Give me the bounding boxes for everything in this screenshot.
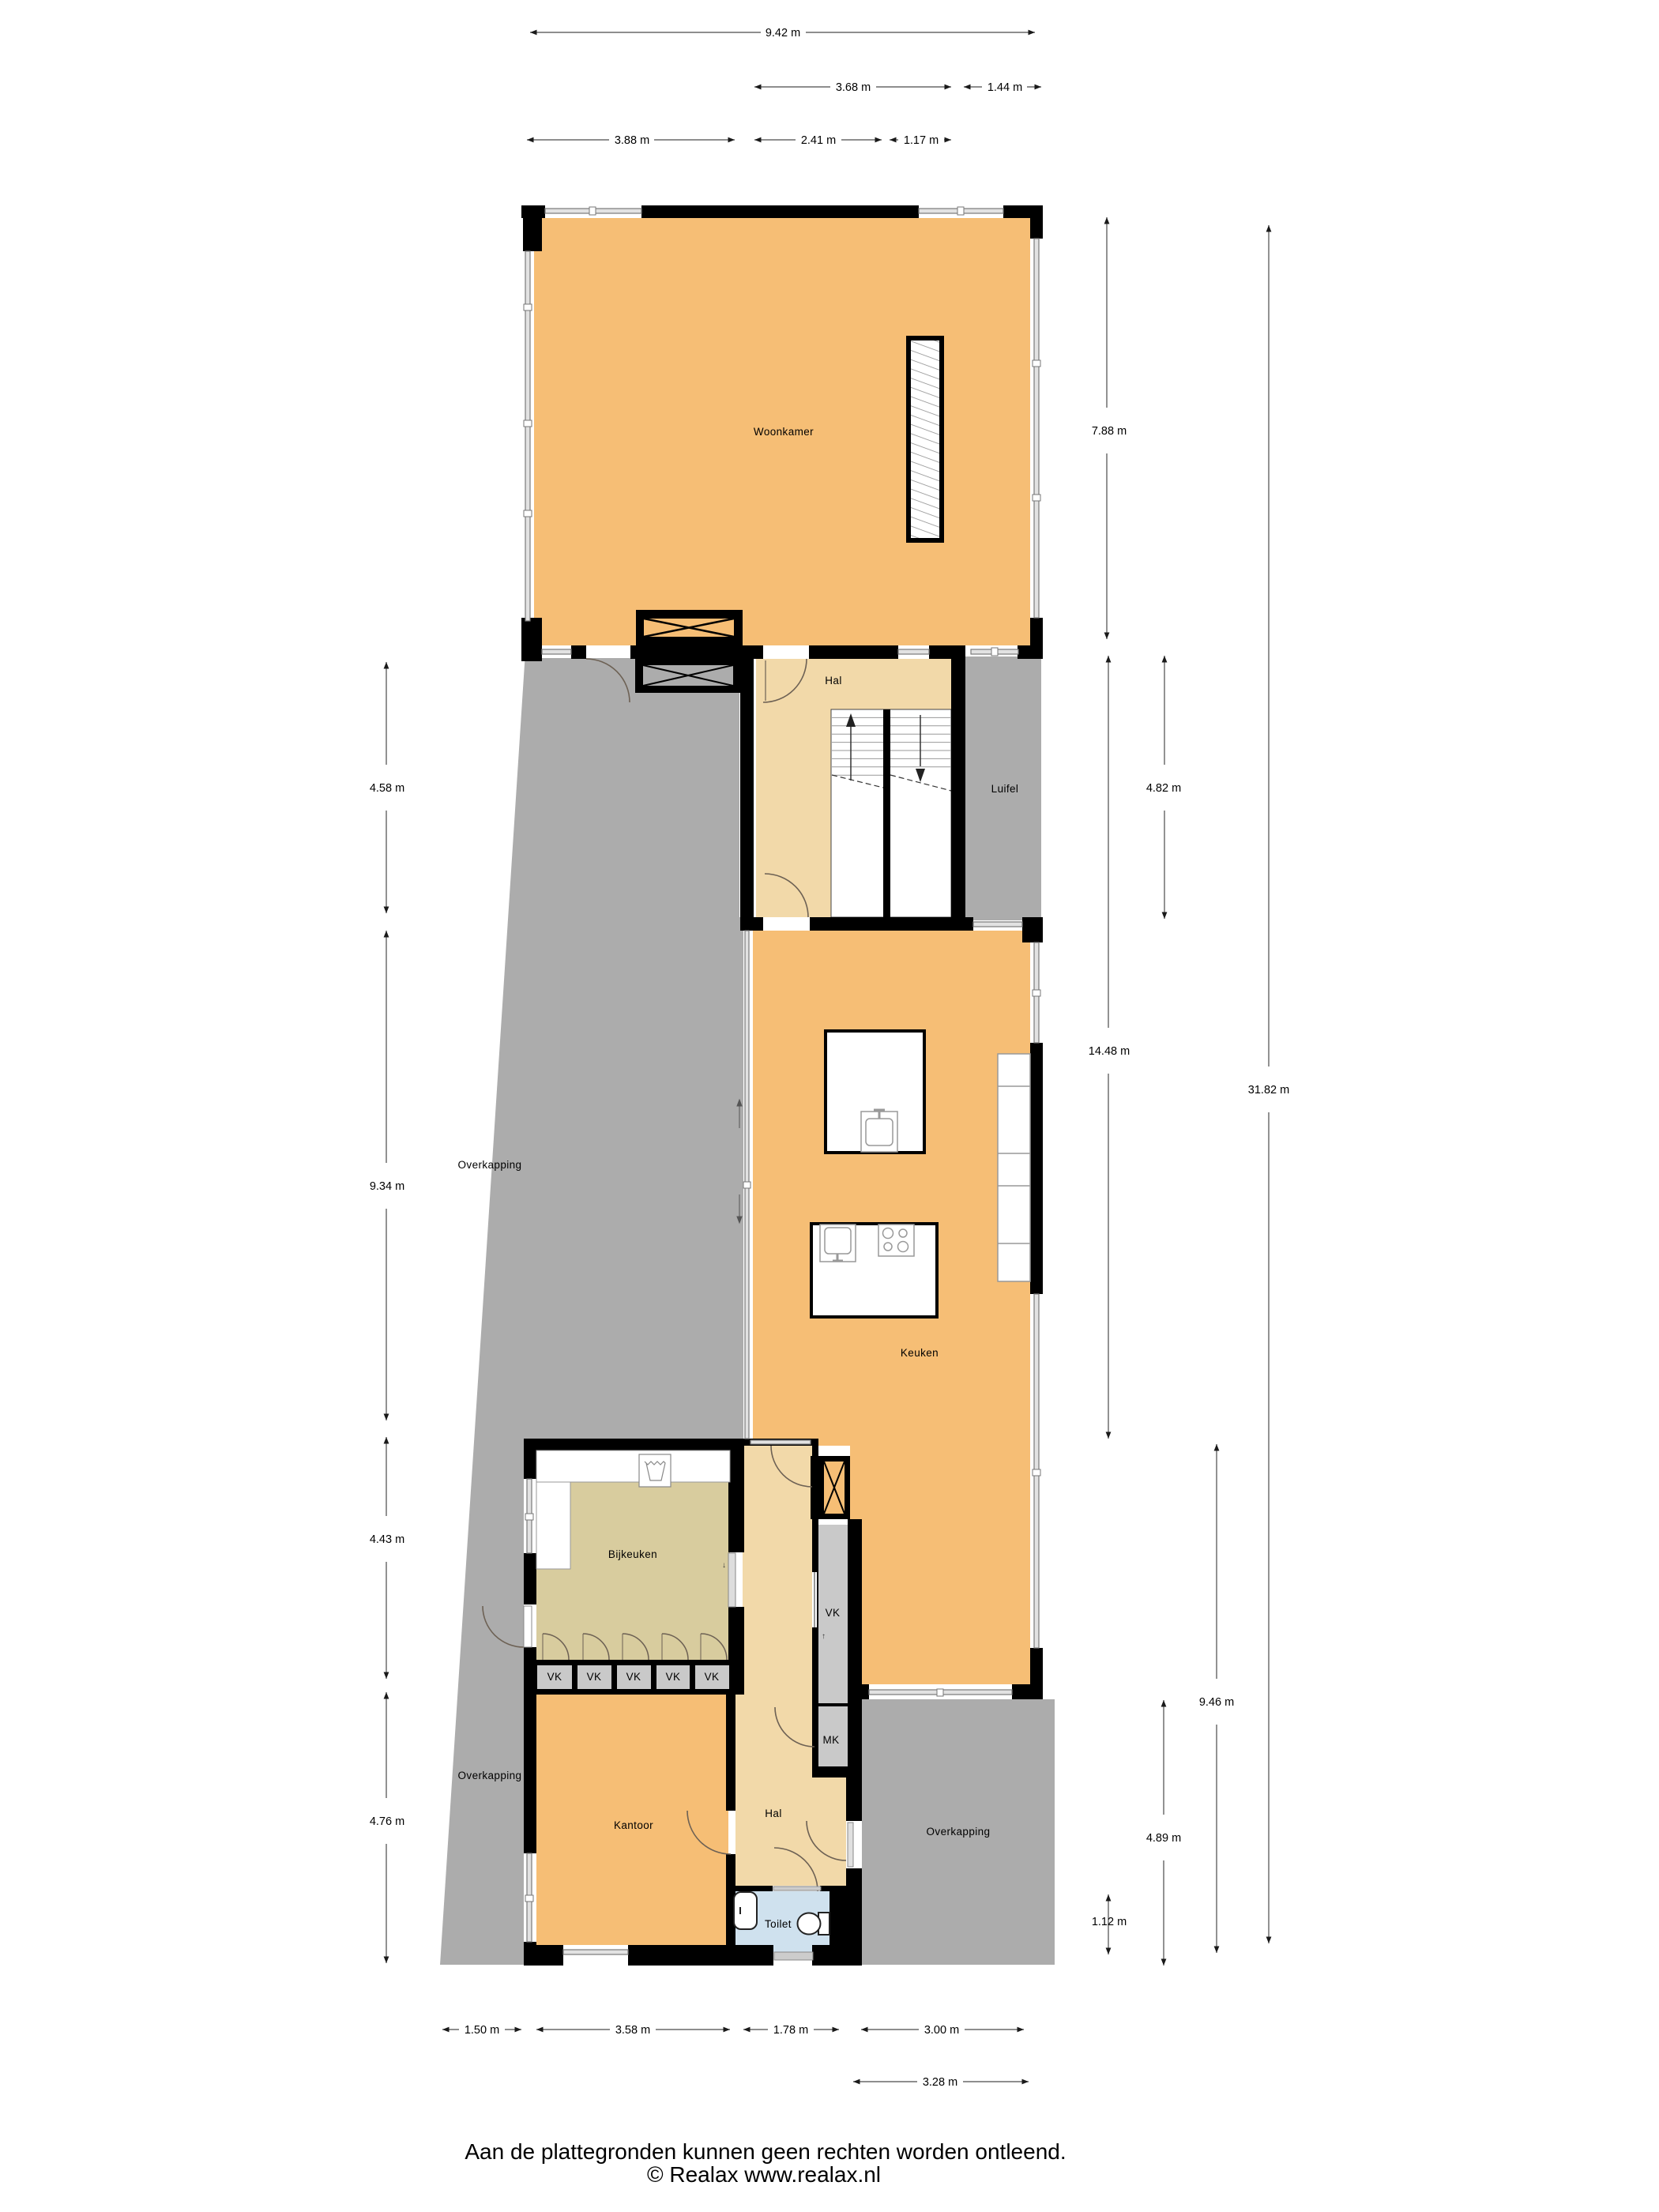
svg-text:VK: VK (547, 1671, 562, 1683)
svg-text:MK: MK (822, 1734, 839, 1746)
svg-text:9.42 m: 9.42 m (766, 27, 800, 39)
svg-text:2.41 m: 2.41 m (801, 134, 836, 147)
svg-text:Woonkamer: Woonkamer (754, 426, 814, 438)
svg-text:1.12 m: 1.12 m (1092, 1916, 1127, 1928)
svg-text:9.34 m: 9.34 m (370, 1180, 404, 1193)
svg-text:Keuken: Keuken (901, 1347, 939, 1359)
svg-text:9.46 m: 9.46 m (1199, 1696, 1234, 1709)
svg-text:Overkapping: Overkapping (458, 1159, 522, 1171)
svg-text:Kantoor: Kantoor (614, 1819, 653, 1831)
svg-text:31.82 m: 31.82 m (1248, 1084, 1289, 1097)
svg-text:4.82 m: 4.82 m (1146, 782, 1181, 795)
svg-text:VK: VK (705, 1671, 720, 1683)
svg-text:7.88 m: 7.88 m (1092, 425, 1127, 438)
svg-text:Bijkeuken: Bijkeuken (608, 1548, 657, 1560)
svg-text:1.50 m: 1.50 m (465, 2024, 499, 2037)
svg-text:Luifel: Luifel (991, 783, 1019, 795)
svg-text:Aan de plattegronden kunnen ge: Aan de plattegronden kunnen geen rechten… (465, 2139, 1066, 2164)
svg-text:VK: VK (826, 1607, 841, 1619)
svg-text:3.88 m: 3.88 m (615, 134, 649, 147)
svg-text:Hal: Hal (825, 675, 841, 687)
svg-text:© Realax www.realax.nl: © Realax www.realax.nl (647, 2162, 881, 2187)
svg-text:4.58 m: 4.58 m (370, 782, 404, 795)
svg-text:VK: VK (587, 1671, 602, 1683)
svg-text:1.17 m: 1.17 m (904, 134, 939, 147)
svg-text:3.00 m: 3.00 m (924, 2024, 959, 2037)
svg-text:3.58 m: 3.58 m (615, 2024, 650, 2037)
svg-text:1.44 m: 1.44 m (987, 81, 1022, 94)
svg-text:VK: VK (666, 1671, 681, 1683)
svg-text:Hal: Hal (765, 1808, 781, 1819)
svg-text:1.78 m: 1.78 m (773, 2024, 808, 2037)
svg-text:4.76 m: 4.76 m (370, 1815, 404, 1828)
svg-text:4.89 m: 4.89 m (1146, 1832, 1181, 1845)
svg-text:Overkapping: Overkapping (458, 1770, 522, 1781)
svg-text:Overkapping: Overkapping (927, 1826, 991, 1838)
svg-text:Toilet: Toilet (765, 1918, 792, 1930)
svg-text:4.43 m: 4.43 m (370, 1533, 404, 1546)
svg-text:↓: ↓ (722, 1561, 726, 1570)
svg-text:↑: ↑ (822, 1632, 826, 1641)
svg-text:VK: VK (626, 1671, 641, 1683)
svg-text:14.48 m: 14.48 m (1089, 1045, 1130, 1058)
svg-text:3.28 m: 3.28 m (923, 2076, 957, 2089)
svg-text:3.68 m: 3.68 m (836, 81, 871, 94)
